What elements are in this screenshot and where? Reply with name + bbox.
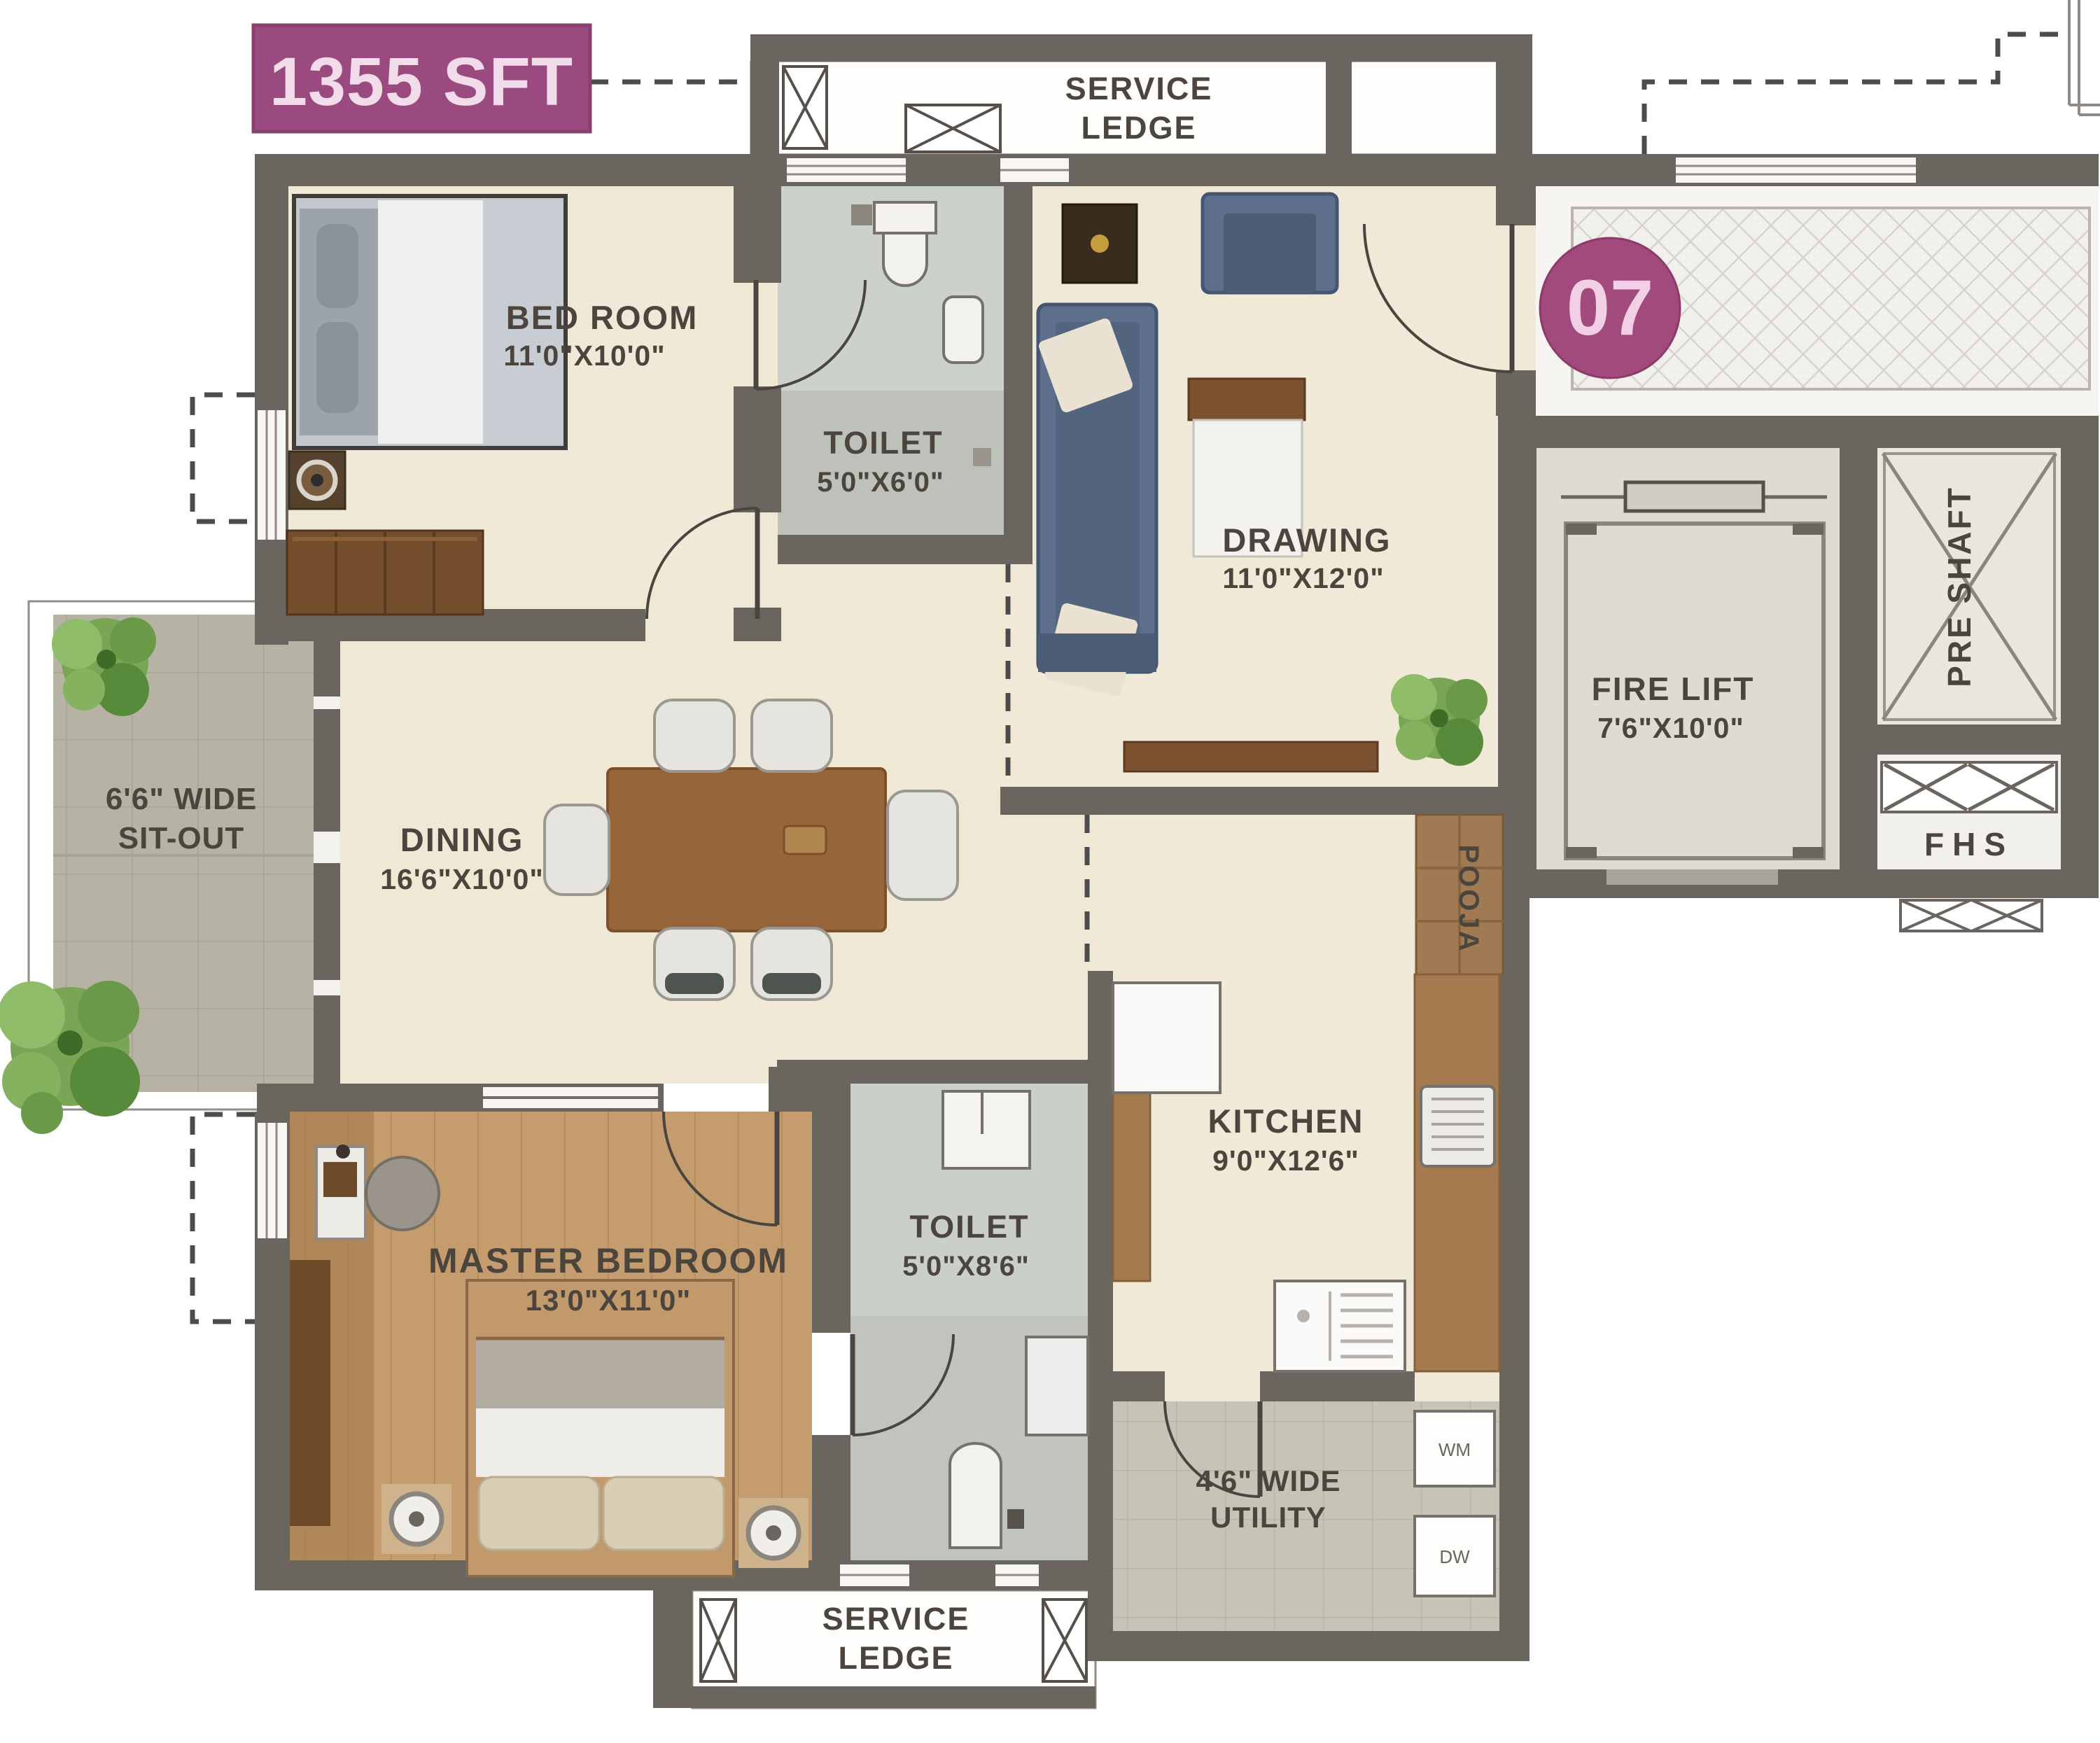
svg-text:KITCHEN: KITCHEN xyxy=(1208,1102,1364,1140)
svg-text:SIT-OUT: SIT-OUT xyxy=(118,821,245,855)
svg-text:DINING: DINING xyxy=(400,821,524,858)
svg-text:LEDGE: LEDGE xyxy=(838,1640,953,1676)
svg-text:6'6" WIDE: 6'6" WIDE xyxy=(106,782,257,816)
svg-text:9'0"X12'6": 9'0"X12'6" xyxy=(1212,1144,1359,1177)
svg-text:TOILET: TOILET xyxy=(909,1209,1029,1245)
svg-text:1355 SFT: 1355 SFT xyxy=(269,43,573,120)
svg-text:5'0"X6'0": 5'0"X6'0" xyxy=(817,467,944,498)
svg-text:16'6"X10'0": 16'6"X10'0" xyxy=(380,863,544,895)
svg-text:07: 07 xyxy=(1567,264,1654,351)
svg-text:7'6"X10'0": 7'6"X10'0" xyxy=(1597,712,1744,744)
svg-text:PRE SHAFT: PRE SHAFT xyxy=(1941,486,1977,687)
svg-text:5'0"X8'6": 5'0"X8'6" xyxy=(902,1251,1030,1282)
svg-text:TOILET: TOILET xyxy=(823,425,943,461)
svg-text:4'6" WIDE: 4'6" WIDE xyxy=(1196,1464,1341,1497)
svg-text:UTILITY: UTILITY xyxy=(1210,1501,1326,1534)
svg-text:LEDGE: LEDGE xyxy=(1081,110,1196,146)
svg-text:11'0"X10'0": 11'0"X10'0" xyxy=(503,339,665,372)
svg-text:MASTER BEDROOM: MASTER BEDROOM xyxy=(428,1241,788,1280)
svg-text:DRAWING: DRAWING xyxy=(1222,521,1391,559)
svg-text:SERVICE: SERVICE xyxy=(822,1601,970,1637)
svg-text:SERVICE: SERVICE xyxy=(1065,71,1213,106)
svg-text:POOJA: POOJA xyxy=(1453,844,1484,953)
svg-text:11'0"X12'0": 11'0"X12'0" xyxy=(1222,562,1384,594)
svg-text:BED ROOM: BED ROOM xyxy=(506,299,699,336)
svg-text:FHS: FHS xyxy=(1924,826,2014,862)
svg-text:FIRE LIFT: FIRE LIFT xyxy=(1592,671,1755,707)
svg-text:DW: DW xyxy=(1439,1546,1470,1567)
svg-text:13'0"X11'0": 13'0"X11'0" xyxy=(526,1284,692,1317)
svg-text:WM: WM xyxy=(1438,1439,1471,1460)
